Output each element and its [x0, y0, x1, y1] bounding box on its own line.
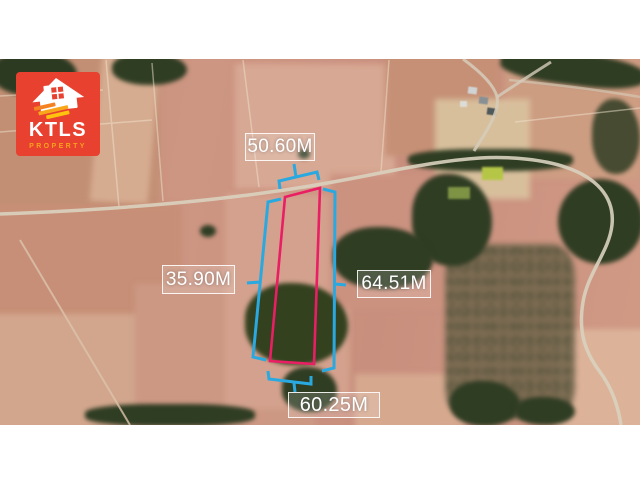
- measurement-value: 60.25M: [300, 394, 369, 417]
- ktls-logo: KTLS PROPERTY: [16, 72, 100, 156]
- tree-cluster: [450, 381, 520, 425]
- bottom-white-band: [0, 425, 640, 480]
- measurement-value: 35.90M: [166, 269, 231, 291]
- measurement-label-top: 50.60M: [245, 133, 315, 161]
- measurement-label-left: 35.90M: [162, 265, 235, 294]
- house-icon: [30, 77, 86, 119]
- measurement-value: 50.60M: [247, 136, 312, 158]
- grass-patch: [482, 167, 503, 180]
- building: [487, 107, 497, 115]
- logo-tagline-text: PROPERTY: [29, 143, 87, 150]
- terrain-field: [235, 64, 395, 189]
- logo-brand-text: KTLS: [29, 120, 87, 140]
- building: [468, 86, 478, 94]
- tree-cluster: [592, 99, 640, 174]
- tree-cluster: [112, 59, 187, 85]
- grass-patch: [448, 187, 470, 199]
- property-listing-image: 50.60M 35.90M 64.51M 60.25M KTLS PROPE: [0, 0, 640, 480]
- building: [479, 96, 489, 104]
- measurement-label-bottom: 60.25M: [288, 392, 380, 418]
- measurement-value: 64.51M: [361, 273, 426, 295]
- measurement-label-right: 64.51M: [357, 270, 431, 298]
- tree-row: [85, 404, 255, 425]
- top-white-band: [0, 0, 640, 59]
- tree-cluster: [558, 179, 640, 264]
- tree-cluster: [515, 397, 575, 425]
- tree-cluster: [245, 283, 348, 365]
- tree-dot: [200, 225, 216, 237]
- building: [460, 101, 467, 107]
